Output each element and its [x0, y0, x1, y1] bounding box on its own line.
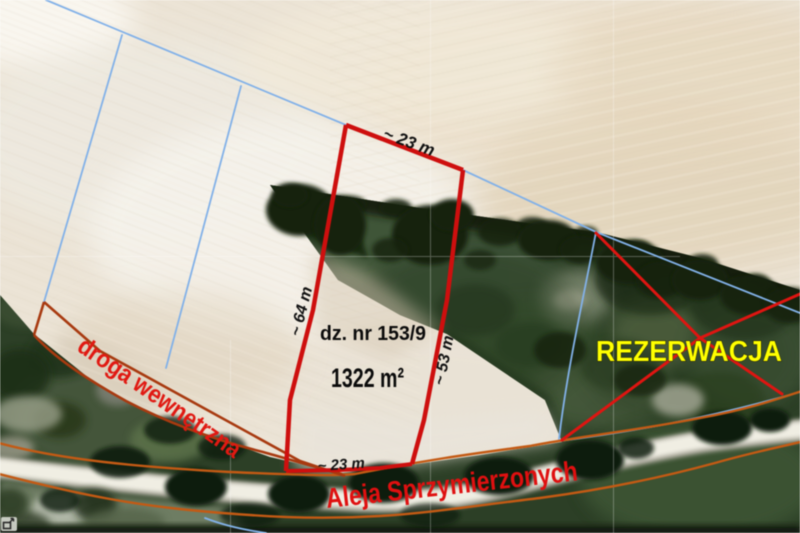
- svg-text:REZERWACJA: REZERWACJA: [596, 336, 782, 368]
- svg-text:dz. nr 153/9: dz. nr 153/9: [320, 323, 426, 345]
- svg-text:1322 m²: 1322 m²: [331, 363, 404, 393]
- svg-text:~ 23 m: ~ 23 m: [317, 455, 365, 475]
